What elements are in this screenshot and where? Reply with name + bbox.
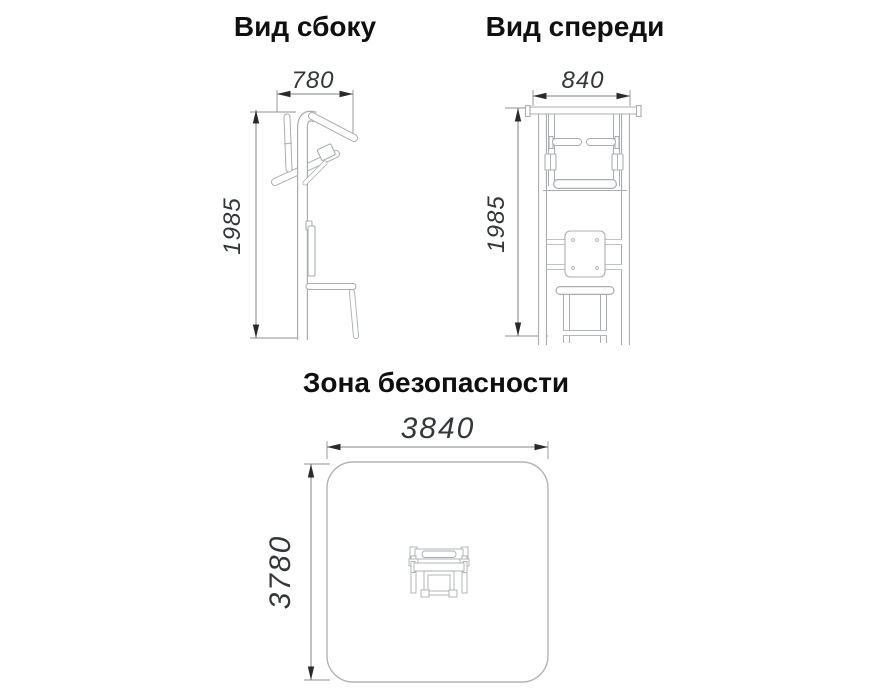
safety-zone-title: Зона безопасности [303, 367, 569, 398]
top-bar-cap-right [637, 106, 642, 117]
safety-height-value: 3780 [264, 535, 297, 610]
side-view-title: Вид сбоку [234, 11, 377, 42]
top-view-mid-bar [414, 563, 464, 571]
safety-zone-view: Зона безопасности 3840 3780 [264, 367, 569, 682]
backrest-side [308, 226, 315, 276]
side-view: Вид сбоку 780 1985 [219, 11, 377, 340]
front-view-title: Вид спереди [486, 11, 665, 42]
side-height-value: 1985 [219, 197, 246, 254]
front-width-value: 840 [561, 67, 604, 94]
top-bar-cap-left [526, 106, 531, 117]
drawing-canvas: Вид сбоку 780 1985 [0, 0, 882, 700]
top-view-foot-right [449, 590, 457, 597]
front-view: Вид спереди 840 1985 [483, 11, 664, 345]
safety-height-dimension: 3780 [264, 464, 330, 680]
safety-zone-boundary [327, 462, 548, 682]
side-width-value: 780 [291, 67, 334, 94]
safety-width-dimension: 3840 [327, 412, 548, 459]
safety-width-value: 3840 [401, 412, 476, 445]
technical-drawing-page: Вид сбоку 780 1985 [0, 0, 882, 700]
front-view-drawing [526, 106, 642, 346]
front-view-width-dimension: 840 [533, 67, 630, 106]
side-view-drawing [275, 116, 356, 340]
top-view-crossbar [422, 551, 456, 558]
front-height-value: 1985 [483, 195, 510, 252]
top-view-foot-left [421, 590, 429, 597]
backrest-plate [565, 231, 605, 277]
